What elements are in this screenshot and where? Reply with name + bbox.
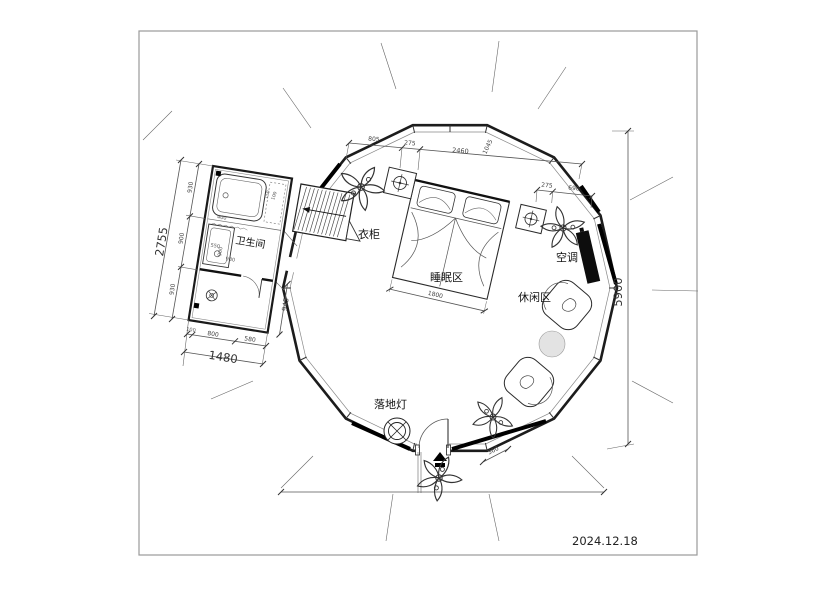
dim-275-right: 275 — [541, 182, 553, 190]
nightstand-right — [516, 204, 547, 233]
entry-door-gap — [417, 443, 449, 459]
nightstand-left — [383, 167, 416, 199]
dim-805: 805 — [368, 135, 380, 143]
dim-275-top: 275 — [404, 139, 416, 147]
column-marker-top — [216, 171, 222, 177]
leisure-area-label: 休闲区 — [518, 290, 551, 304]
floor-lamp-symbol — [384, 418, 410, 444]
side-table — [539, 331, 565, 357]
sleeping-area-label: 睡眠区 — [430, 271, 463, 284]
floor-plan-page: 1800 — [0, 0, 837, 592]
dim-2460: 2460 — [452, 146, 469, 155]
floor-plan-canvas: 1800 — [0, 0, 837, 592]
floor-lamp-label: 落地灯 — [374, 398, 407, 411]
dim-690: 690 — [568, 185, 580, 193]
date-label: 2024.12.18 — [572, 534, 638, 548]
dim-5900-label: 5900 — [611, 277, 625, 306]
column-marker-bottom — [194, 303, 200, 309]
wardrobe-label: 衣柜 — [358, 227, 380, 241]
ac-label: 空调 — [556, 250, 578, 264]
